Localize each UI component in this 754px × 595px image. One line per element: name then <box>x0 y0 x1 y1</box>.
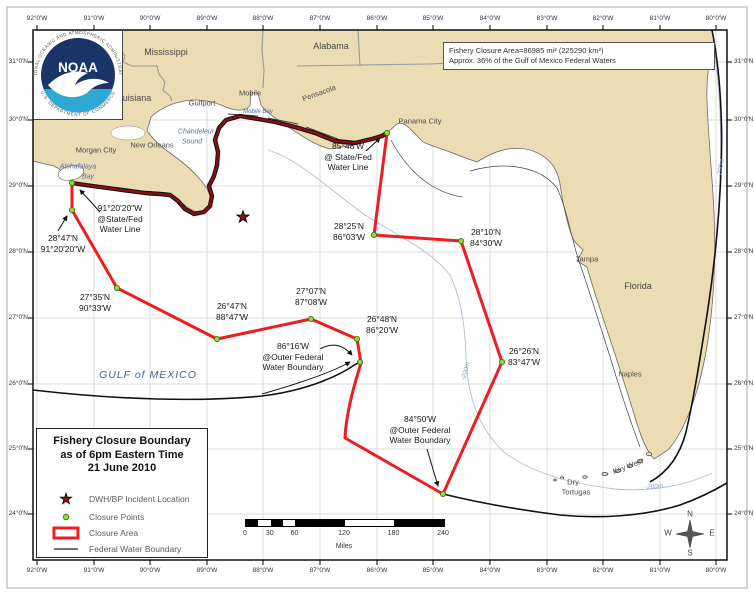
water-label-mobile-bay: Mobile Bay <box>243 109 273 115</box>
lat-label-left: 26°0'N <box>0 380 28 387</box>
state-label-mississippi: Mississippi <box>144 47 188 57</box>
lon-label-bottom: 92°0'W <box>27 567 48 574</box>
map-page: 92°0'W 91°0'W 90°0'W 89°0'W 88°0'W 87°0'… <box>0 0 754 595</box>
callout-26-47N: 26°47'N88°47'W <box>192 301 272 322</box>
scale-tick-240: 240 <box>437 530 449 537</box>
water-label-gulf-of-mexico: GULF of MEXICO <box>99 369 197 381</box>
scale-tick-60: 60 <box>291 530 299 537</box>
water-label-atchafalaya-bay: Bay <box>82 174 94 181</box>
callout-28-10N: 28°10'N84°30'W <box>446 227 526 248</box>
city-label-mobile: Mobile <box>239 89 261 98</box>
lon-label-top: 90°0'W <box>140 15 161 22</box>
city-label-panama-city: Panama City <box>399 117 442 126</box>
lat-label-left: 24°0'N <box>0 510 28 517</box>
legend-item-federal-boundary: Federal Water Boundary <box>49 542 181 556</box>
water-label-chandeleur-sound: Sound <box>182 139 202 146</box>
scale-tick-0: 0 <box>243 530 247 537</box>
callout-26-48N: 26°48'N86°20'W <box>342 314 422 335</box>
water-label-atchafalaya-bay: Atchafalaya <box>60 164 97 171</box>
state-label-florida: Florida <box>624 281 652 291</box>
lon-label-top: 81°0'W <box>650 15 671 22</box>
scale-bar <box>245 519 445 527</box>
lat-label-left: 30°0'N <box>0 116 28 123</box>
city-label-dry-tortugas: Tortugas <box>562 488 591 497</box>
lat-label-left: 27°0'N <box>0 314 28 321</box>
lon-label-top: 82°0'W <box>593 15 614 22</box>
city-label-naples: Naples <box>618 370 641 379</box>
lon-label-top: 89°0'W <box>197 15 218 22</box>
lon-label-top: 86°0'W <box>367 15 388 22</box>
lon-label-bottom: 87°0'W <box>310 567 331 574</box>
closure-area-size: Fishery Closure Area=86985 mi² (225290 k… <box>449 46 709 56</box>
legend-label-federal-boundary: Federal Water Boundary <box>89 544 181 554</box>
closure-point-icon <box>49 512 83 522</box>
lat-label-right: 28°0'N <box>734 248 754 255</box>
map-title-date: 21 June 2010 <box>37 462 207 476</box>
lon-label-top: 91°0'W <box>84 15 105 22</box>
state-label-alabama: Alabama <box>313 41 349 51</box>
lon-label-bottom: 84°0'W <box>480 567 501 574</box>
closure-area-icon <box>49 526 83 540</box>
lat-label-right: 25°0'N <box>734 445 754 452</box>
legend-label-closure-area: Closure Area <box>89 528 138 538</box>
incident-location-star <box>237 211 249 223</box>
lake-pontchartrain <box>111 126 145 140</box>
legend-item-incident: DWH/BP Incident Location <box>49 492 189 506</box>
closure-area-info-box: Fishery Closure Area=86985 mi² (225290 k… <box>443 42 715 70</box>
lon-label-top: 84°0'W <box>480 15 501 22</box>
callout-state-fed-east: 85°48'W@ State/FedWater Line <box>303 141 393 173</box>
compass-south-label: S <box>687 549 692 558</box>
lon-label-top: 88°0'W <box>253 15 274 22</box>
lon-label-bottom: 88°0'W <box>253 567 274 574</box>
scale-tick-180: 180 <box>388 530 400 537</box>
callout-outer-federal-84-50W: 84°50'W@Outer FederalWater Boundary <box>374 414 466 446</box>
callout-27-35N: 27°35'N90°33'W <box>55 292 135 313</box>
map-title-time: as of 6pm Eastern Time <box>37 449 207 463</box>
water-label-chandeleur-sound: Chandeleur <box>178 129 214 136</box>
lon-label-bottom: 90°0'W <box>140 567 161 574</box>
lon-label-top: 83°0'W <box>537 15 558 22</box>
lat-label-right: 24°0'N <box>734 510 754 517</box>
compass-west-label: W <box>664 529 672 538</box>
scale-unit: Miles <box>336 543 352 550</box>
legend-item-closure-area: Closure Area <box>49 526 138 540</box>
map-title: Fishery Closure Boundary <box>37 435 207 449</box>
lon-label-bottom: 86°0'W <box>367 567 388 574</box>
legend-label-closure-points: Closure Points <box>89 512 144 522</box>
callout-state-fed-west: 91°20'20"W@State/FedWater Line <box>80 203 160 235</box>
lon-label-top: 80°0'W <box>706 15 727 22</box>
lon-label-bottom: 91°0'W <box>84 567 105 574</box>
closure-area-percent: Approx. 36% of the Gulf of Mexico Federa… <box>449 56 709 66</box>
city-label-morgan-city: Morgan City <box>76 146 116 155</box>
noaa-logo: NOAA NATIONAL OCEANIC AND ATMOSPHERIC AD… <box>33 30 123 120</box>
noaa-acronym: NOAA <box>58 60 98 75</box>
incident-star-icon <box>49 492 83 506</box>
lat-label-left: 29°0'N <box>0 182 28 189</box>
compass-north-label: N <box>687 510 693 519</box>
lat-label-right: 29°0'N <box>734 182 754 189</box>
city-label-new-orleans: New Orleans <box>130 141 173 150</box>
compass-rose-icon <box>676 520 704 548</box>
city-label-tampa: Tampa <box>576 255 599 264</box>
lat-label-right: 26°0'N <box>734 380 754 387</box>
lon-label-top: 92°0'W <box>27 15 48 22</box>
lon-label-bottom: 81°0'W <box>650 567 671 574</box>
callout-28-47N: 28°47'N91°20'20"W <box>23 233 103 254</box>
lat-label-left: 31°0'N <box>0 58 28 65</box>
lon-label-bottom: 80°0'W <box>706 567 727 574</box>
legend-item-closure-points: Closure Points <box>49 510 144 524</box>
legend-label-incident: DWH/BP Incident Location <box>89 494 189 504</box>
lat-label-right: 27°0'N <box>734 314 754 321</box>
lon-label-bottom: 85°0'W <box>423 567 444 574</box>
lon-label-bottom: 82°0'W <box>593 567 614 574</box>
lat-label-right: 31°0'N <box>734 58 754 65</box>
lon-label-bottom: 89°0'W <box>197 567 218 574</box>
scale-tick-120: 120 <box>338 530 350 537</box>
lon-label-top: 87°0'W <box>310 15 331 22</box>
federal-boundary-line-icon <box>49 546 83 552</box>
compass-east-label: E <box>709 529 714 538</box>
title-legend-box: Fishery Closure Boundary as of 6pm Easte… <box>36 428 208 558</box>
city-label-dry-tortugas: Dry <box>567 478 579 487</box>
scale-tick-30: 30 <box>266 530 274 537</box>
lon-label-bottom: 83°0'W <box>537 567 558 574</box>
lat-label-left: 25°0'N <box>0 445 28 452</box>
lat-label-right: 30°0'N <box>734 116 754 123</box>
callout-26-26N: 26°26'N83°47'W <box>484 346 564 367</box>
lon-label-top: 85°0'W <box>423 15 444 22</box>
callout-outer-federal-86-16W: 86°16'W@Outer FederalWater Boundary <box>247 341 339 373</box>
callout-28-25N: 28°25'N86°03'W <box>309 221 389 242</box>
city-label-gulfport: Gulfport <box>189 99 216 108</box>
callout-27-07N: 27°07'N87°08'W <box>271 286 351 307</box>
